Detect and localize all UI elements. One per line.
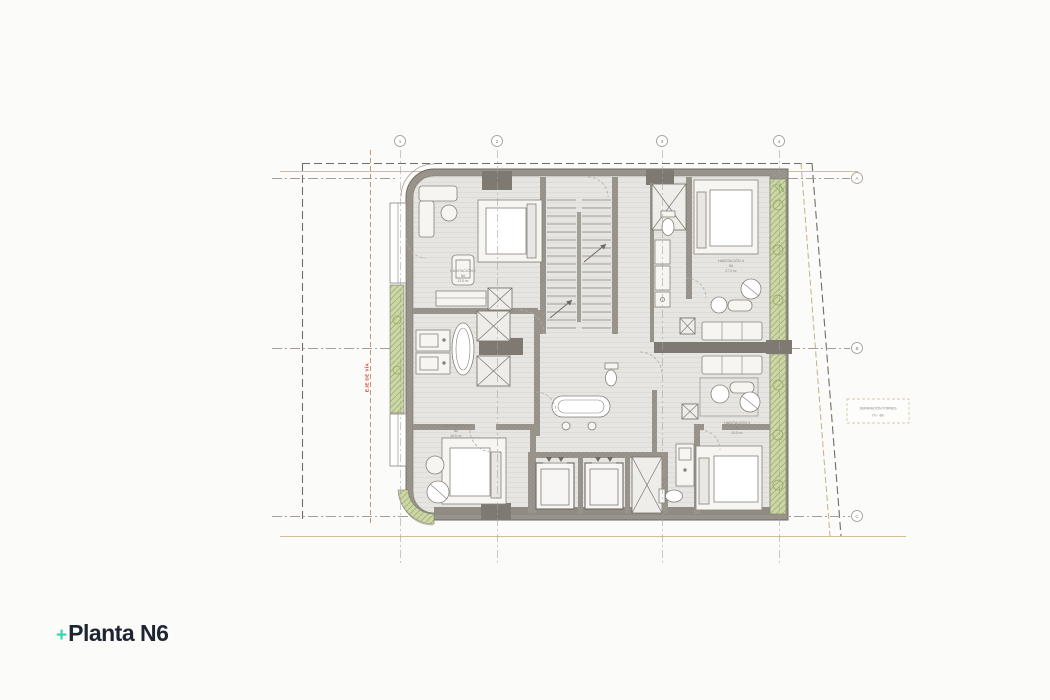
elevator-2 <box>585 457 623 509</box>
fan-chair-habitacion-1 <box>427 481 449 503</box>
grid-bubble-right-b: B <box>852 343 863 354</box>
svg-text:A: A <box>855 176 858 181</box>
svg-text:HABITACIÓN 3: HABITACIÓN 3 <box>724 420 750 425</box>
chair-habitacion-1 <box>426 456 444 474</box>
grid-bubble-top-1: 1 <box>395 136 406 147</box>
red-street-note: EJE DE VÍA <box>363 362 370 392</box>
shaft-x-elevator <box>632 457 662 513</box>
svg-text:SEPARACIÓN TORRES: SEPARACIÓN TORRES <box>860 406 898 411</box>
floor-plan-drawing: 1 2 3 4 A B C HABITACI <box>0 0 1050 700</box>
planter-right-upper <box>770 179 786 341</box>
plus-icon: + <box>56 625 67 647</box>
shaft-x-2 <box>477 311 510 341</box>
shaft-x-5 <box>680 318 695 334</box>
bench-habitacion-2 <box>436 291 486 306</box>
bathtub <box>452 323 474 375</box>
svg-text:26.5 m²: 26.5 m² <box>450 434 462 438</box>
svg-text:HABITACIÓN 2: HABITACIÓN 2 <box>450 268 476 273</box>
bed-habitacion-4 <box>694 180 758 254</box>
bed-habitacion-3 <box>696 446 762 510</box>
svg-text:N6: N6 <box>729 264 733 268</box>
page-title: Planta N6 <box>68 620 168 647</box>
svg-text:B: B <box>855 346 858 351</box>
elevator-1 <box>536 457 574 509</box>
toilet-top <box>661 211 675 236</box>
grid-bubble-top-3: 3 <box>657 136 668 147</box>
shaft-x-1 <box>488 288 512 310</box>
side-table-habitacion-2 <box>441 205 457 221</box>
property-line-right-slant <box>812 163 841 536</box>
grid-bubble-top-2: 2 <box>492 136 503 147</box>
svg-text:23.5 m²: 23.5 m² <box>457 279 469 283</box>
svg-text:HABITACIÓN 1: HABITACIÓN 1 <box>443 423 469 428</box>
grid-bubble-right-a: A <box>852 173 863 184</box>
svg-text:N6: N6 <box>454 429 458 433</box>
svg-text:7m - 8m: 7m - 8m <box>872 414 885 418</box>
setback-line-slant <box>801 163 830 536</box>
bed-habitacion-1 <box>442 438 506 504</box>
svg-text:27.5 m²: 27.5 m² <box>725 269 737 273</box>
vanity-right-bath <box>676 444 694 486</box>
svg-text:N6: N6 <box>461 274 465 278</box>
building <box>390 164 792 525</box>
page: 1 2 3 4 A B C HABITACI <box>0 0 1050 700</box>
shaft-x-3 <box>477 356 510 386</box>
svg-text:24.5 m²: 24.5 m² <box>731 431 743 435</box>
shaft-x-6 <box>682 404 698 419</box>
title-block: + Planta N6 <box>56 620 168 647</box>
planter-left <box>390 285 404 413</box>
svg-text:N6: N6 <box>735 426 739 430</box>
svg-text:HABITACIÓN 4: HABITACIÓN 4 <box>718 258 744 263</box>
grid-bubble-right-c: C <box>852 511 863 522</box>
separation-note-box: SEPARACIÓN TORRES 7m - 8m <box>847 399 909 423</box>
grid-bubble-top-4: 4 <box>774 136 785 147</box>
bed-habitacion-2 <box>478 200 542 262</box>
